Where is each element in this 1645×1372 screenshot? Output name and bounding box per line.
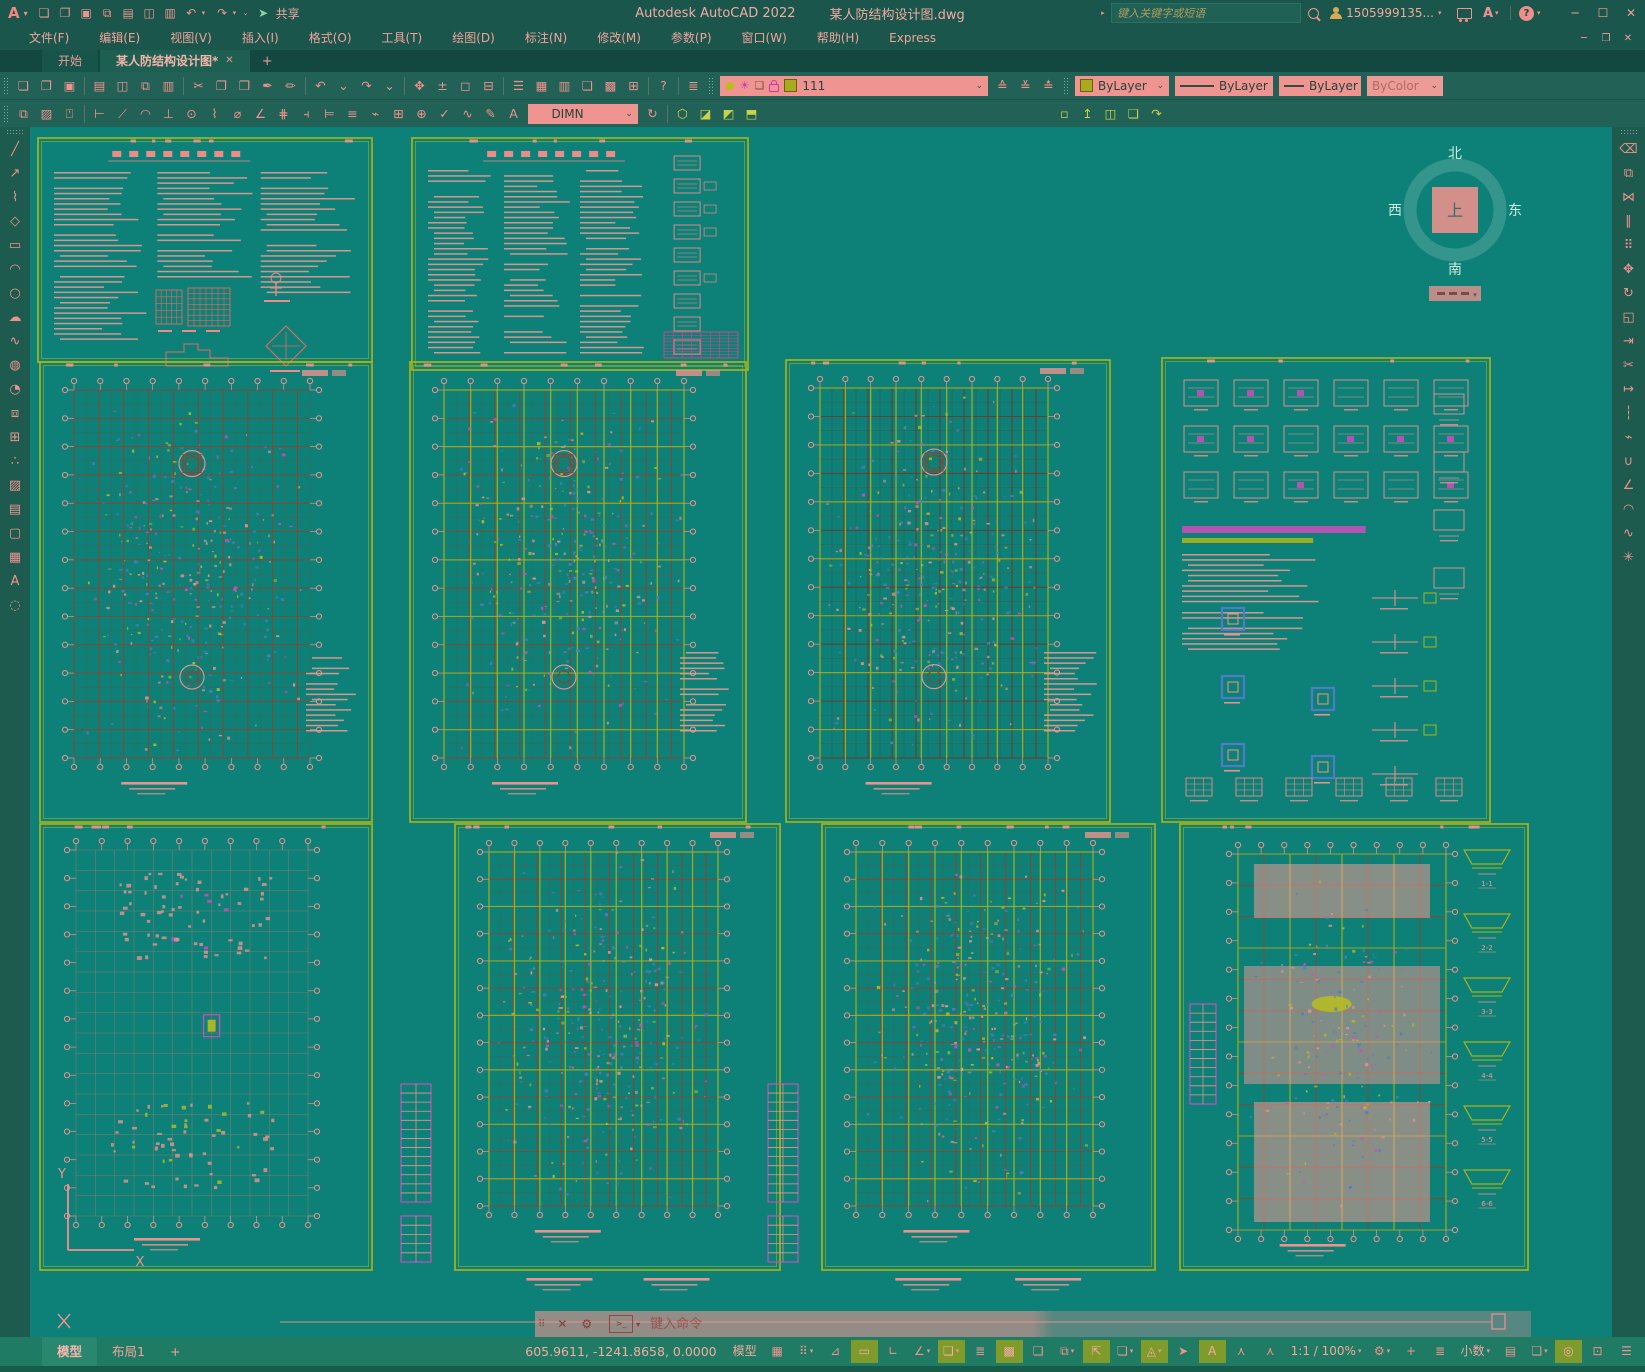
save-icon[interactable]: ▣ — [58, 74, 81, 98]
lock-ui-icon-glyph: ❏ — [1531, 1340, 1542, 1363]
store-chevron-icon[interactable]: ▾ — [1495, 9, 1505, 17]
command-chevron-icon[interactable]: ▾ — [636, 1320, 640, 1329]
markup-icon[interactable]: ▩ — [599, 74, 622, 98]
units-value[interactable]: 小数▾ — [1455, 1340, 1495, 1363]
coordinates-readout: 605.9611, -1241.8658, 0.0000 — [515, 1344, 726, 1359]
draw-toolbar: ╱↗⌇◇▭◠○☁∿◍◔⧈⊞∴▨▤▢▦A◌ — [0, 126, 30, 1337]
svg-text:6-6: 6-6 — [1481, 1200, 1493, 1208]
customization-icon[interactable]: ☰ — [1613, 1340, 1640, 1363]
dimstyle-chevron-icon[interactable]: ⌄ — [625, 109, 633, 119]
undo-icon[interactable]: ↶ — [181, 0, 202, 26]
units-list-icon[interactable]: ≣ — [1426, 1340, 1453, 1363]
revcloud-icon[interactable]: ☁ — [4, 306, 27, 330]
selection-filter-icon[interactable]: ◬▾ — [1141, 1340, 1168, 1363]
dynamic-ucs-icon[interactable]: ❏▾ — [1112, 1340, 1139, 1363]
transparency-icon[interactable]: ❏ — [1025, 1340, 1052, 1363]
color-swatch — [1080, 79, 1093, 92]
3dprint-icon[interactable]: ▥ — [157, 74, 180, 98]
gradient-icon[interactable]: ▤ — [4, 498, 27, 522]
infer-constraints-icon[interactable]: ⊿ — [822, 1340, 849, 1363]
grid-icon[interactable]: ▦ — [764, 1340, 791, 1363]
menu-item-7[interactable]: 标注(N) — [510, 26, 582, 50]
divider — [503, 77, 504, 95]
copy-clip-icon[interactable]: ❐ — [210, 74, 233, 98]
polar-tracking-icon-glyph: ∠ — [914, 1340, 925, 1363]
copy-icon[interactable]: ⧉ — [1617, 162, 1640, 186]
angular-dim-icon[interactable]: ∠ — [249, 102, 272, 126]
divider — [678, 77, 679, 95]
model-tab[interactable]: 模型 — [42, 1337, 97, 1366]
color-dropdown[interactable]: ByLayer⌄ — [1075, 76, 1169, 96]
qnew-icon[interactable]: ❏ — [34, 0, 55, 26]
linetype-sample — [1180, 85, 1214, 87]
share-label[interactable]: 共享 — [276, 5, 300, 22]
app-menu-chevron-icon[interactable]: ▾ — [24, 9, 28, 18]
doc-minimize-button[interactable]: ─ — [1573, 33, 1595, 44]
move-icon[interactable]: ✥ — [1617, 258, 1640, 282]
layer-lock-icon[interactable] — [769, 84, 779, 92]
undo-chevron-icon[interactable]: ▾ — [202, 9, 212, 17]
toolbar-grip[interactable] — [3, 77, 9, 95]
help-icon[interactable]: ? — [652, 74, 675, 98]
join-icon[interactable]: ∪ — [1617, 450, 1640, 474]
rectangle-icon[interactable]: ▭ — [4, 234, 27, 258]
redo-icon[interactable]: ↷ — [355, 74, 378, 98]
dimstyle-dropdown[interactable]: DIMN⌄ — [528, 104, 638, 124]
make-block-icon[interactable]: ⊞ — [4, 426, 27, 450]
3dalign-icon[interactable]: ↷ — [1145, 102, 1168, 126]
object-snap-tracking-icon-glyph: ≣ — [975, 1340, 985, 1363]
layer-previous-icon[interactable]: ≚ — [1014, 74, 1037, 98]
extend-icon[interactable]: ↦ — [1617, 378, 1640, 402]
menu-item-1[interactable]: 编辑(E) — [84, 26, 155, 50]
command-close-icon[interactable]: ✕ — [557, 1317, 567, 1331]
break-icon[interactable]: ⌁ — [1617, 426, 1640, 450]
tolerance-icon[interactable]: ⊞ — [387, 102, 410, 126]
drawing-canvas[interactable]: 1-12-23-34-45-56-6上北南西东▾YX — [30, 126, 1612, 1337]
linetype-value: ByLayer — [1219, 79, 1268, 93]
redo-icon[interactable]: ↷ — [212, 0, 233, 26]
layer-properties-icon[interactable]: ≣ — [682, 74, 705, 98]
designcenter-icon[interactable]: ▦ — [530, 74, 553, 98]
ellipse-icon[interactable]: ◍ — [4, 354, 27, 378]
status-bar: 模型 布局1 + 605.9611, -1241.8658, 0.0000 模型… — [0, 1337, 1645, 1372]
block-editor-icon[interactable]: ✏ — [279, 74, 302, 98]
dim-update-icon[interactable]: ↻ — [641, 102, 664, 126]
snap-icon[interactable]: ⠿▾ — [793, 1340, 820, 1363]
isometric-drafting-icon-chevron-icon: ▾ — [956, 1340, 960, 1363]
3d-osnap-icon-glyph: ⇱ — [1091, 1340, 1101, 1363]
annotate-front-icon[interactable]: ⍞ — [58, 102, 81, 126]
modify-toolbar: ⌫⧉⋈∥⠿✥↻◱⇥✂↦┆⌁∪∠◠∿✳ — [1612, 126, 1645, 1337]
pan-icon[interactable]: ✥ — [408, 74, 431, 98]
divider — [305, 77, 306, 95]
layout1-tab[interactable]: 布局1 — [97, 1337, 160, 1366]
quick-properties-icon-glyph: ▤ — [1505, 1340, 1516, 1363]
polar-tracking-icon[interactable]: ∠▾ — [909, 1340, 936, 1363]
polyline-icon[interactable]: ⌇ — [4, 186, 27, 210]
dim-inspect-icon[interactable]: ✓ — [433, 102, 456, 126]
doc-restore-button[interactable]: ❐ — [1595, 33, 1617, 44]
selection-filter-icon-glyph: ◬ — [1147, 1340, 1156, 1363]
menu-item-9[interactable]: 参数(P) — [656, 26, 727, 50]
layer-name: 111 — [802, 79, 825, 93]
aligned-dim-icon[interactable]: ⟋ — [111, 102, 134, 126]
layer-dropdown-chevron-icon[interactable]: ⌄ — [975, 81, 983, 91]
plotstyle-dropdown[interactable]: ByColor⌄ — [1367, 76, 1443, 96]
user-avatar-icon[interactable] — [1330, 7, 1342, 19]
explode-icon[interactable]: ✳ — [1617, 546, 1640, 570]
window-controls: ─☐✕ — [1561, 0, 1645, 26]
graphics-performance-icon-glyph: ◎ — [1563, 1340, 1573, 1363]
new-tab-button[interactable]: + — [252, 54, 283, 69]
app-store-cart-icon[interactable] — [1457, 8, 1472, 19]
dim-space-icon[interactable]: ≡ — [341, 102, 364, 126]
svg-text:2-2: 2-2 — [1481, 944, 1492, 952]
layer-viewport-icon[interactable]: ❏ — [754, 79, 764, 92]
intersect-icon[interactable]: ◩ — [717, 102, 740, 126]
rotate-icon[interactable]: ↻ — [1617, 282, 1640, 306]
user-chevron-icon[interactable]: ▾ — [1438, 9, 1448, 17]
isometric-drafting-icon[interactable]: ❏▾ — [938, 1340, 965, 1363]
layer-translate-icon[interactable]: ≛ — [1037, 74, 1060, 98]
dynamic-ucs-icon-chevron-icon: ▾ — [1130, 1340, 1134, 1363]
units-value-chevron-icon: ▾ — [1486, 1340, 1490, 1363]
ortho-icon-glyph: ∟ — [888, 1340, 898, 1363]
layer-freeze-icon[interactable]: ☀ — [740, 79, 750, 92]
hatch-icon[interactable]: ▨ — [4, 474, 27, 498]
quick-access-toolbar: ❏❐▣⧉▤◫▥ — [34, 0, 181, 26]
plotstyle-value: ByColor — [1372, 79, 1419, 93]
clean-screen-icon-glyph: ⊡ — [1592, 1340, 1602, 1363]
svg-text:南: 南 — [1448, 262, 1462, 278]
zoom-window-icon[interactable]: ◻ — [454, 74, 477, 98]
dynamic-ucs-icon-glyph: ❏ — [1117, 1340, 1128, 1363]
tab-start[interactable]: 开始 — [42, 50, 98, 72]
svg-text:▾: ▾ — [1473, 291, 1477, 299]
trim-icon[interactable]: ✂ — [1617, 354, 1640, 378]
lock-ui-icon-chevron-icon: ▾ — [1544, 1340, 1548, 1363]
svg-text:西: 西 — [1388, 203, 1402, 219]
plot-preview-icon[interactable]: ◫ — [111, 74, 134, 98]
status-settings-icon-glyph: ⚙ — [1374, 1340, 1385, 1363]
plot-icon[interactable]: ▤ — [88, 74, 111, 98]
divider — [1510, 6, 1511, 20]
blend-icon[interactable]: ∿ — [1617, 522, 1640, 546]
circle-icon[interactable]: ○ — [4, 282, 27, 306]
sheet-set-icon[interactable]: ❏ — [576, 74, 599, 98]
toolbar-grip[interactable] — [1620, 129, 1638, 135]
layer-dropdown[interactable]: ●☀❏111⌄ — [720, 76, 988, 96]
slice-icon[interactable]: ❏ — [1122, 102, 1145, 126]
annotation-scale-chevron-icon: ▾ — [1358, 1340, 1362, 1363]
autoscale-icon-glyph: ⋏ — [1237, 1340, 1246, 1363]
tab-drawing[interactable]: 某人防结构设计图* ✕ — [100, 50, 250, 72]
planesurf-icon[interactable]: ◫ — [1099, 102, 1122, 126]
crosshair-icon[interactable]: + — [1397, 1340, 1424, 1363]
quick-dim-icon[interactable]: ⋕ — [272, 102, 295, 126]
dynamic-input-icon[interactable]: ▭ — [851, 1340, 878, 1363]
region-icon[interactable]: ▢ — [4, 522, 27, 546]
user-id[interactable]: 1505999135... — [1346, 6, 1434, 20]
tab-close-icon[interactable]: ✕ — [225, 50, 233, 72]
menu-item-5[interactable]: 工具(T) — [367, 26, 438, 50]
status-settings-icon-chevron-icon: ▾ — [1387, 1340, 1391, 1363]
point-icon[interactable]: ∴ — [4, 450, 27, 474]
toolbar-grip[interactable] — [708, 77, 714, 95]
menu-item-11[interactable]: 帮助(H) — [802, 26, 874, 50]
selection-filter-icon-chevron-icon: ▾ — [1158, 1340, 1162, 1363]
continue-dim-icon[interactable]: ⊨ — [318, 102, 341, 126]
construction-line-icon[interactable]: ↗ — [4, 162, 27, 186]
status-toggles: ▦⠿▾⊿▭∟∠▾❏▾≣▩❏⧉▾⇱❏▾◬▾➤A⋏⋏1:1 / 100%▾⚙▾+≣小… — [763, 1340, 1641, 1363]
cad-drawing: 1-12-23-34-45-56-6上北南西东▾YX — [30, 126, 1612, 1337]
search-input[interactable]: 键入关键字或短语 — [1111, 3, 1301, 23]
line-icon[interactable]: ╱ — [4, 138, 27, 162]
cut-icon[interactable]: ✂ — [187, 74, 210, 98]
mtext-icon[interactable]: A — [4, 570, 27, 594]
clean-screen-icon[interactable]: ⊡ — [1584, 1340, 1611, 1363]
mirror-icon[interactable]: ⋈ — [1617, 186, 1640, 210]
crosshair-icon-glyph: + — [1406, 1340, 1416, 1363]
svg-text:上: 上 — [1447, 201, 1463, 220]
save-icon[interactable]: ▣ — [76, 0, 97, 26]
snap-icon-chevron-icon: ▾ — [810, 1340, 814, 1363]
menu-item-4[interactable]: 格式(O) — [294, 26, 367, 50]
window-title: Autodesk AutoCAD 2022某人防结构设计图.dwg — [420, 0, 1180, 26]
customization-icon-glyph: ☰ — [1621, 1340, 1632, 1363]
polar-tracking-icon-chevron-icon: ▾ — [927, 1340, 931, 1363]
selection-cycling-icon-glyph: ⧉ — [1060, 1340, 1069, 1363]
object-snap-icon-glyph: ▩ — [1003, 1340, 1014, 1363]
status-settings-icon[interactable]: ⚙▾ — [1368, 1340, 1395, 1363]
undo-icon[interactable]: ↶ — [309, 74, 332, 98]
svg-text:4-4: 4-4 — [1481, 1072, 1493, 1080]
graphics-performance-icon[interactable]: ◎ — [1555, 1340, 1582, 1363]
match-properties-icon[interactable]: ✒ — [256, 74, 279, 98]
close-button[interactable]: ✕ — [1617, 0, 1645, 26]
dim-break-icon[interactable]: ⌁ — [364, 102, 387, 126]
open-icon[interactable]: ❐ — [35, 74, 58, 98]
share-icon[interactable]: ➤ — [253, 0, 274, 26]
table-icon[interactable]: ▦ — [4, 546, 27, 570]
title-bar: A ▾ ❏❐▣⧉▤◫▥ ↶ ▾ ↷ ▾ ⌄ ➤ 共享 Autodesk Auto… — [0, 0, 1645, 26]
help-chevron-icon[interactable]: ▾ — [1537, 9, 1547, 17]
divider — [84, 77, 85, 95]
annotation-people-icon-glyph: ⋏ — [1266, 1340, 1275, 1363]
command-prompt-icon[interactable]: >_ — [609, 1315, 633, 1333]
svg-text:Y: Y — [57, 1167, 66, 1182]
lineweight-dropdown[interactable]: ByLayer⌄ — [1279, 76, 1361, 96]
snap-icon-glyph: ⠿ — [799, 1340, 808, 1363]
box-icon[interactable]: ▫ — [1053, 102, 1076, 126]
stretch-icon[interactable]: ⇥ — [1617, 330, 1640, 354]
app-menu-button[interactable]: A — [0, 4, 24, 22]
extrude-icon[interactable]: ⬒ — [740, 102, 763, 126]
scale-icon[interactable]: ◱ — [1617, 306, 1640, 330]
arc-icon[interactable]: ◠ — [4, 258, 27, 282]
diameter-dim-icon[interactable]: ⌀ — [226, 102, 249, 126]
autodesk-app-icon[interactable]: A — [1483, 6, 1493, 21]
menu-item-2[interactable]: 视图(V) — [155, 26, 227, 50]
3d-osnap-icon[interactable]: ⇱ — [1083, 1340, 1110, 1363]
ortho-icon[interactable]: ∟ — [880, 1340, 907, 1363]
subtract-icon[interactable]: ◪ — [694, 102, 717, 126]
print-icon[interactable]: ▥ — [160, 0, 181, 26]
spline-icon[interactable]: ∿ — [4, 330, 27, 354]
svg-text:X: X — [136, 1255, 145, 1270]
erase-icon[interactable]: ⌫ — [1617, 138, 1640, 162]
lineweight-value: ByLayer — [1309, 79, 1358, 93]
color-chevron-icon[interactable]: ⌄ — [1156, 81, 1164, 91]
annotation-scale-glyph: 1:1 / 100% — [1291, 1340, 1356, 1363]
toolbar-grip[interactable] — [1063, 77, 1069, 95]
annotation-visibility-icon-glyph: A — [1208, 1340, 1216, 1363]
undo-chevron[interactable]: ⌄ — [332, 74, 355, 98]
menu-item-10[interactable]: 窗口(W) — [727, 26, 802, 50]
make-current-layer-icon[interactable]: ≙ — [991, 74, 1014, 98]
dim-text-edit-icon[interactable]: A — [502, 102, 525, 126]
fillet-icon[interactable]: ◠ — [1617, 498, 1640, 522]
plot-icon[interactable]: ▤ — [118, 0, 139, 26]
gizmo-icon-glyph: ➤ — [1178, 1340, 1188, 1363]
annotation-scale[interactable]: 1:1 / 100%▾ — [1286, 1340, 1367, 1363]
jogged-dim-icon[interactable]: ⌇ — [203, 102, 226, 126]
polygon-icon[interactable]: ◇ — [4, 210, 27, 234]
dim-edit-icon[interactable]: ✎ — [479, 102, 502, 126]
infer-constraints-icon-glyph: ⊿ — [830, 1340, 840, 1363]
menu-item-8[interactable]: 修改(M) — [582, 26, 656, 50]
qnew-icon[interactable]: ❏ — [12, 74, 35, 98]
color-value: ByLayer — [1098, 79, 1147, 93]
baseline-dim-icon[interactable]: ⫞ — [295, 102, 318, 126]
quickcalc-icon[interactable]: ⊞ — [622, 74, 645, 98]
units-value-glyph: 小数 — [1460, 1340, 1484, 1363]
publish-icon[interactable]: ⧉ — [134, 74, 157, 98]
open-icon[interactable]: ❐ — [55, 0, 76, 26]
svg-text:东: 东 — [1508, 203, 1522, 219]
linear-dim-icon[interactable]: ⊢ — [88, 102, 111, 126]
toolbar-grip[interactable] — [6, 129, 24, 135]
radius-dim-icon[interactable]: ⊙ — [180, 102, 203, 126]
svg-text:5-5: 5-5 — [1481, 1136, 1492, 1144]
lineweight-sample — [1284, 85, 1304, 87]
point-style-icon[interactable]: ◌ — [4, 594, 27, 618]
hatch-tool-icon[interactable]: ▨ — [35, 102, 58, 126]
model-space-button[interactable]: 模型 — [728, 1340, 762, 1363]
dynamic-input-icon-glyph: ▭ — [858, 1340, 869, 1363]
ordinate-dim-icon[interactable]: ⊥ — [157, 102, 180, 126]
menu-item-0[interactable]: 文件(F) — [14, 26, 84, 50]
insert-block-icon[interactable]: ⧈ — [4, 402, 27, 426]
plot-preview-icon[interactable]: ◫ — [139, 0, 160, 26]
offset-icon[interactable]: ∥ — [1617, 210, 1640, 234]
divider — [648, 77, 649, 95]
command-customize-icon[interactable]: ⚙ — [581, 1317, 592, 1331]
command-line-bar[interactable]: ⠿ ✕ ⚙ >_ ▾ — [535, 1311, 1531, 1337]
redo-chevron[interactable]: ⌄ — [378, 74, 401, 98]
selection-cycling-icon-chevron-icon: ▾ — [1071, 1340, 1075, 1363]
divider — [404, 77, 405, 95]
svg-text:3-3: 3-3 — [1481, 1008, 1492, 1016]
linetype-dropdown[interactable]: ByLayer⌄ — [1175, 76, 1273, 96]
layer-on-icon[interactable]: ● — [725, 79, 735, 92]
chamfer-icon[interactable]: ∠ — [1617, 474, 1640, 498]
menu-item-3[interactable]: 插入(I) — [227, 26, 294, 50]
tool-palettes-icon[interactable]: ▥ — [553, 74, 576, 98]
svg-text:1-1: 1-1 — [1481, 880, 1492, 888]
divider — [667, 105, 668, 123]
menu-item-12[interactable]: Express — [874, 26, 951, 50]
menu-item-6[interactable]: 绘图(D) — [437, 26, 510, 50]
break-at-point-icon[interactable]: ┆ — [1617, 402, 1640, 426]
file-tab-bar: 开始 某人防结构设计图* ✕ + — [0, 50, 1645, 72]
zoom-previous-icon[interactable]: ⊟ — [477, 74, 500, 98]
center-mark-icon[interactable]: ⊕ — [410, 102, 433, 126]
redo-chevron-icon[interactable]: ▾ — [233, 9, 243, 17]
save-as-icon[interactable]: ⧉ — [97, 0, 118, 26]
ellipse-arc-icon[interactable]: ◔ — [4, 378, 27, 402]
search-expander-icon[interactable]: ▸ — [1101, 9, 1111, 17]
arc-length-icon[interactable]: ◠ — [134, 102, 157, 126]
svg-text:北: 北 — [1448, 146, 1462, 162]
doc-close-button[interactable]: ✕ — [1617, 33, 1639, 44]
maximize-button[interactable]: ☐ — [1589, 0, 1617, 26]
object-snap-icon[interactable]: ▩ — [996, 1340, 1023, 1363]
annotation-visibility-icon[interactable]: A — [1199, 1340, 1226, 1363]
dimension-toolbar: ⧉▨⍞⊢⟋◠⊥⊙⌇⌀∠⋕⫞⊨≡⌁⊞⊕✓∿✎ADIMN⌄↻⬡◪◩⬒▫↥◫❏↷ — [0, 99, 1645, 127]
command-grip-icon[interactable]: ⠿ — [538, 1319, 544, 1330]
new-layout-button[interactable]: + — [160, 1337, 190, 1366]
dim-jogline-icon[interactable]: ∿ — [456, 102, 479, 126]
transparency-icon-glyph: ❏ — [1033, 1340, 1044, 1363]
help-icon[interactable]: ? — [1519, 6, 1534, 21]
divider — [183, 77, 184, 95]
divider — [84, 105, 85, 123]
command-input[interactable] — [648, 1316, 1292, 1333]
array-icon[interactable]: ⠿ — [1617, 234, 1640, 258]
toolbar-grip[interactable] — [3, 105, 9, 123]
menu-bar: 文件(F)编辑(E)视图(V)插入(I)格式(O)工具(T)绘图(D)标注(N)… — [0, 26, 1645, 50]
search-icon[interactable] — [1308, 8, 1319, 19]
plotstyle-chevron-icon[interactable]: ⌄ — [1430, 81, 1438, 91]
paste-icon[interactable]: ❒ — [233, 74, 256, 98]
standard-toolbar: ❏❐▣▤◫⧉▥✂❐❒✒✏↶⌄↷⌄✥±◻⊟☰▦▥❏▩⊞?≣●☀❏111⌄≙≚≛By… — [0, 72, 1645, 99]
autoscale-icon[interactable]: ⋏ — [1228, 1340, 1255, 1363]
doc-window-controls: ─❐✕ — [1573, 33, 1639, 44]
grid-icon-glyph: ▦ — [771, 1340, 782, 1363]
gizmo-icon[interactable]: ➤ — [1170, 1340, 1197, 1363]
annotation-people-icon[interactable]: ⋏ — [1257, 1340, 1284, 1363]
draworder-icon[interactable]: ⧉ — [12, 102, 35, 126]
lock-ui-icon[interactable]: ❏▾ — [1526, 1340, 1553, 1363]
union-icon[interactable]: ⬡ — [671, 102, 694, 126]
isometric-drafting-icon-glyph: ❏ — [943, 1340, 954, 1363]
polysolid-icon[interactable]: ↥ — [1076, 102, 1099, 126]
units-list-icon-glyph: ≣ — [1435, 1340, 1445, 1363]
quick-properties-icon[interactable]: ▤ — [1497, 1340, 1524, 1363]
minimize-button[interactable]: ─ — [1561, 0, 1589, 26]
customize-quick-access-icon[interactable]: ⌄ — [243, 9, 253, 17]
properties-icon[interactable]: ☰ — [507, 74, 530, 98]
object-snap-tracking-icon[interactable]: ≣ — [967, 1340, 994, 1363]
layer-color-swatch[interactable] — [784, 79, 797, 92]
dimstyle-value: DIMN — [551, 107, 583, 121]
selection-cycling-icon[interactable]: ⧉▾ — [1054, 1340, 1081, 1363]
zoom-realtime-icon[interactable]: ± — [431, 74, 454, 98]
